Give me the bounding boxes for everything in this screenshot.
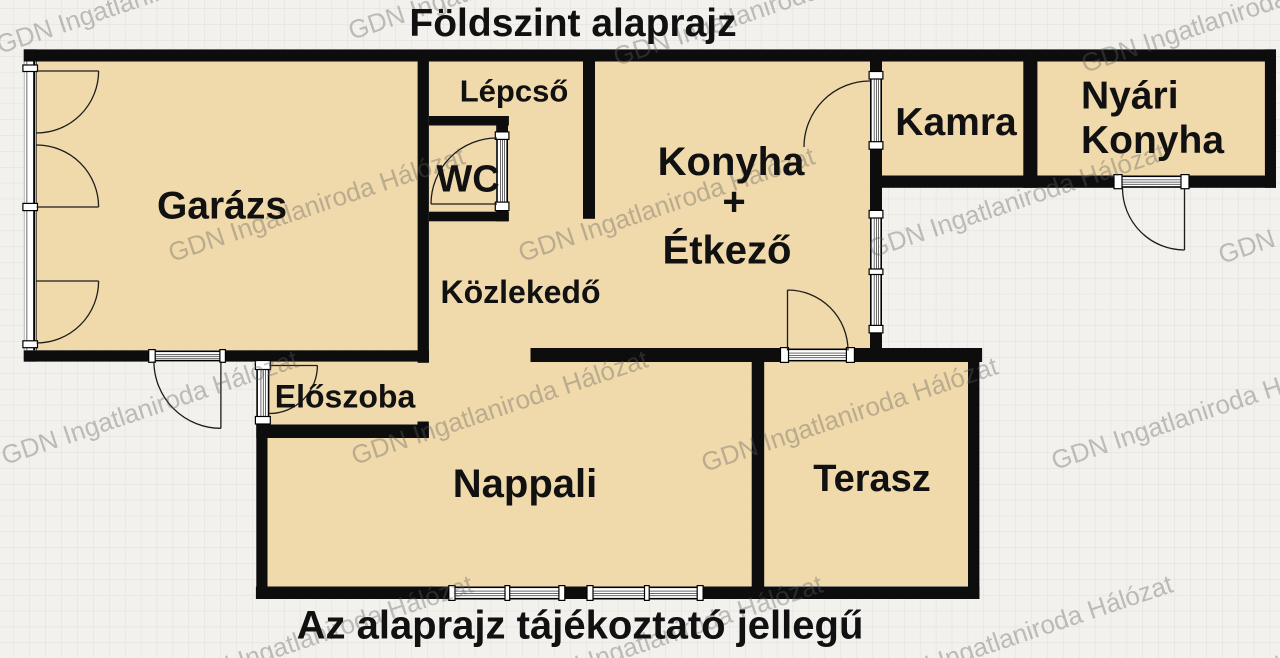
svg-text:Terasz: Terasz xyxy=(813,458,931,500)
svg-text:Lépcső: Lépcső xyxy=(460,74,569,109)
svg-text:Kamra: Kamra xyxy=(895,101,1017,144)
svg-text:Előszoba: Előszoba xyxy=(275,378,416,414)
svg-text:Konyha: Konyha xyxy=(1081,119,1224,162)
svg-text:WC: WC xyxy=(436,159,499,201)
svg-text:Közlekedő: Közlekedő xyxy=(440,274,600,310)
svg-text:+: + xyxy=(722,180,745,224)
svg-text:Az alaprajz tájékoztató jelleg: Az alaprajz tájékoztató jellegű xyxy=(297,604,864,648)
svg-text:Étkező: Étkező xyxy=(663,228,792,273)
svg-text:Garázs: Garázs xyxy=(157,185,287,228)
svg-text:Nappali: Nappali xyxy=(453,462,597,506)
svg-text:Nyári: Nyári xyxy=(1081,75,1179,118)
svg-text:Konyha: Konyha xyxy=(658,140,805,184)
svg-text:Földszint alaprajz: Földszint alaprajz xyxy=(409,2,736,45)
